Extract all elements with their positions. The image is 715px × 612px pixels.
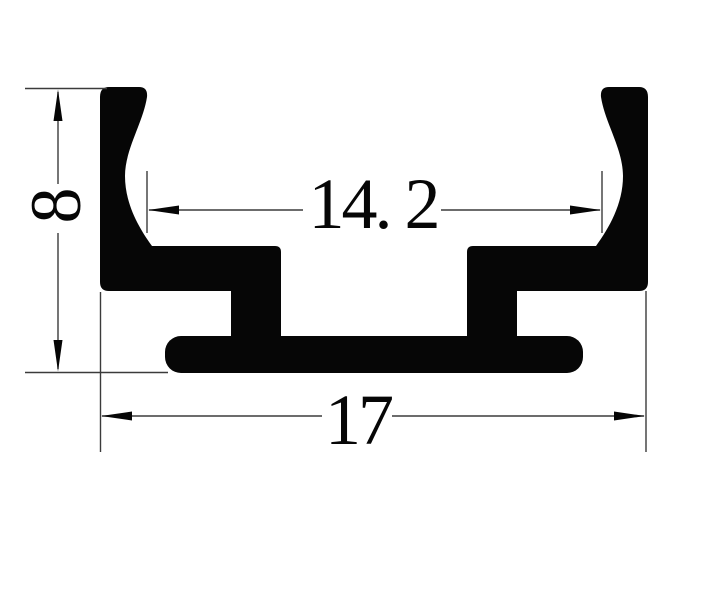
- height-dim-arrow-up: [54, 90, 63, 122]
- profile-base-plate: [165, 336, 583, 373]
- height-dim-arrow-down: [54, 340, 63, 372]
- inner-width-dim-arrow-left: [148, 206, 179, 215]
- inner-width-dim-label: 14. 2: [309, 164, 438, 244]
- profile-cross-section-drawing: 8 14. 2 17: [0, 0, 715, 612]
- profile-right-wall: [467, 87, 648, 348]
- height-dim-label: 8: [16, 190, 96, 224]
- outer-width-dim-arrow-right: [614, 412, 645, 421]
- drawing-page: 8 14. 2 17: [0, 0, 715, 612]
- outer-width-dim-arrow-left: [101, 412, 132, 421]
- outer-width-dim-label: 17: [325, 380, 392, 460]
- inner-width-dim-arrow-right: [570, 206, 601, 215]
- profile-left-wall: [100, 87, 281, 348]
